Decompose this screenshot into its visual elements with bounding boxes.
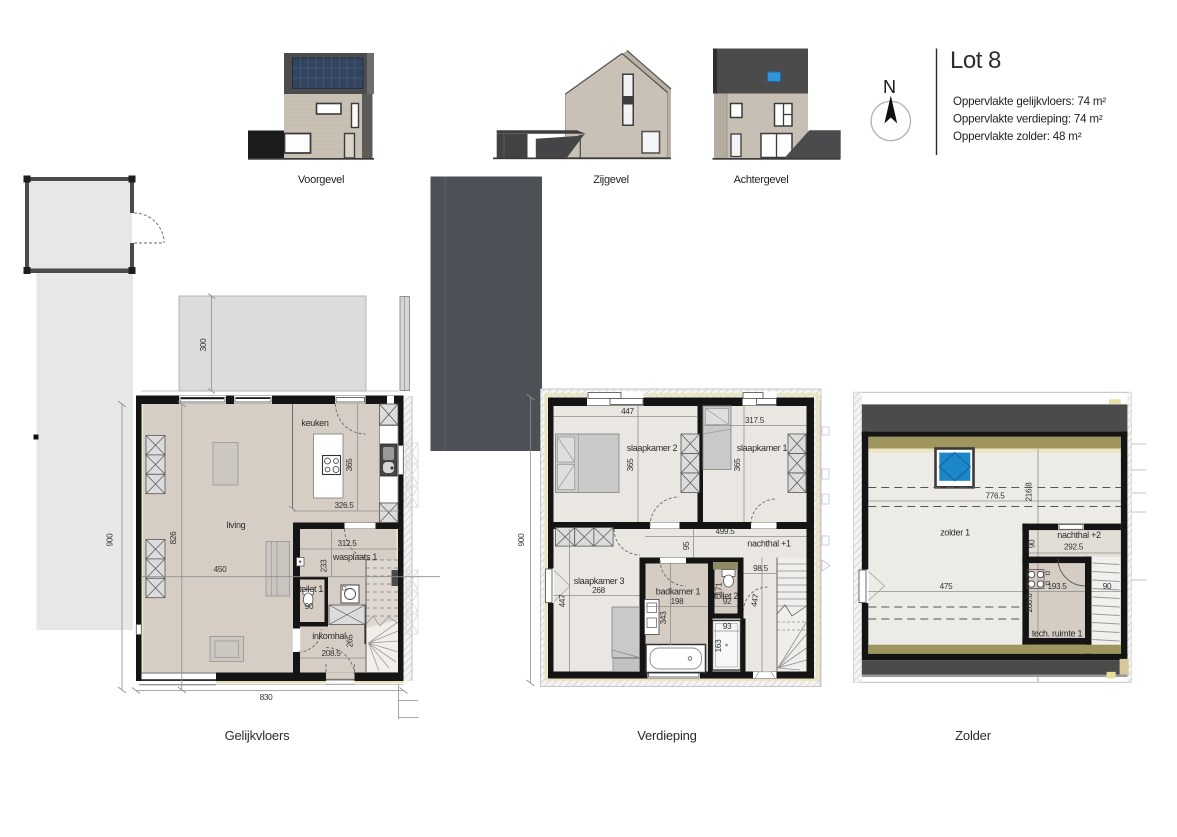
svg-text:900: 900 [517, 533, 526, 547]
svg-text:475: 475 [940, 582, 954, 591]
svg-text:300: 300 [199, 338, 208, 352]
svg-text:447: 447 [621, 407, 635, 416]
svg-text:nachthal +1: nachthal +1 [747, 539, 791, 549]
svg-text:Verdieping: Verdieping [637, 728, 696, 743]
svg-text:Voorgevel: Voorgevel [298, 174, 344, 186]
svg-text:inkomhal: inkomhal [312, 631, 346, 641]
svg-text:Lot 8: Lot 8 [950, 47, 1001, 74]
svg-text:slaapkamer 1: slaapkamer 1 [737, 443, 788, 453]
svg-text:292.5: 292.5 [1064, 543, 1084, 552]
svg-text:326.5: 326.5 [335, 501, 355, 510]
svg-text:Oppervlakte gelijkvloers: 74 m: Oppervlakte gelijkvloers: 74 m² [953, 95, 1106, 108]
svg-text:208.5: 208.5 [322, 649, 342, 658]
svg-text:90: 90 [305, 602, 314, 611]
svg-text:365: 365 [345, 458, 354, 472]
svg-text:317.5: 317.5 [745, 416, 765, 425]
svg-text:Zijgevel: Zijgevel [593, 174, 629, 186]
svg-text:233: 233 [320, 559, 329, 573]
svg-text:260.6: 260.6 [1025, 593, 1034, 613]
svg-text:Oppervlakte verdieping: 74 m²: Oppervlakte verdieping: 74 m² [953, 113, 1103, 126]
svg-text:nachthal +2: nachthal +2 [1057, 530, 1101, 540]
svg-text:365: 365 [626, 458, 635, 472]
svg-text:slaapkamer 3: slaapkamer 3 [574, 576, 625, 586]
svg-text:tech. ruimte 1: tech. ruimte 1 [1032, 629, 1083, 639]
svg-text:830: 830 [260, 693, 274, 702]
svg-text:N: N [883, 77, 896, 97]
svg-text:98.5: 98.5 [753, 564, 768, 573]
svg-text:312.5: 312.5 [338, 539, 358, 548]
svg-text:95: 95 [682, 541, 691, 550]
svg-text:163: 163 [714, 639, 723, 653]
svg-text:Zolder: Zolder [955, 728, 992, 743]
svg-text:268: 268 [592, 586, 606, 595]
svg-text:776.5: 776.5 [986, 492, 1006, 501]
svg-text:toilet 2: toilet 2 [714, 591, 738, 601]
svg-text:living: living [227, 520, 246, 530]
svg-text:900: 900 [106, 533, 115, 547]
svg-text:toilet 1: toilet 1 [299, 584, 323, 594]
svg-text:Oppervlakte zolder: 48 m²: Oppervlakte zolder: 48 m² [953, 130, 1082, 143]
svg-text:badkamer 1: badkamer 1 [656, 587, 701, 597]
svg-text:keuken: keuken [301, 418, 329, 428]
svg-text:450: 450 [214, 565, 228, 574]
svg-text:Achtergevel: Achtergevel [734, 174, 789, 186]
svg-text:zolder 1: zolder 1 [940, 528, 970, 538]
svg-text:wasplaats 1: wasplaats 1 [332, 552, 378, 562]
svg-text:343: 343 [659, 611, 668, 625]
svg-text:slaapkamer 2: slaapkamer 2 [627, 443, 678, 453]
svg-text:499.5: 499.5 [716, 527, 736, 536]
svg-text:193.5: 193.5 [1048, 582, 1068, 591]
svg-text:93: 93 [723, 622, 732, 631]
svg-text:447: 447 [558, 594, 567, 608]
svg-text:Gelijkvloers: Gelijkvloers [225, 728, 290, 743]
svg-text:365: 365 [733, 458, 742, 472]
svg-text:216.8: 216.8 [1025, 482, 1034, 502]
svg-text:90: 90 [1028, 539, 1037, 548]
svg-text:265: 265 [346, 634, 355, 648]
svg-text:90: 90 [1103, 582, 1112, 591]
svg-text:826: 826 [169, 531, 178, 545]
svg-text:198: 198 [671, 597, 685, 606]
